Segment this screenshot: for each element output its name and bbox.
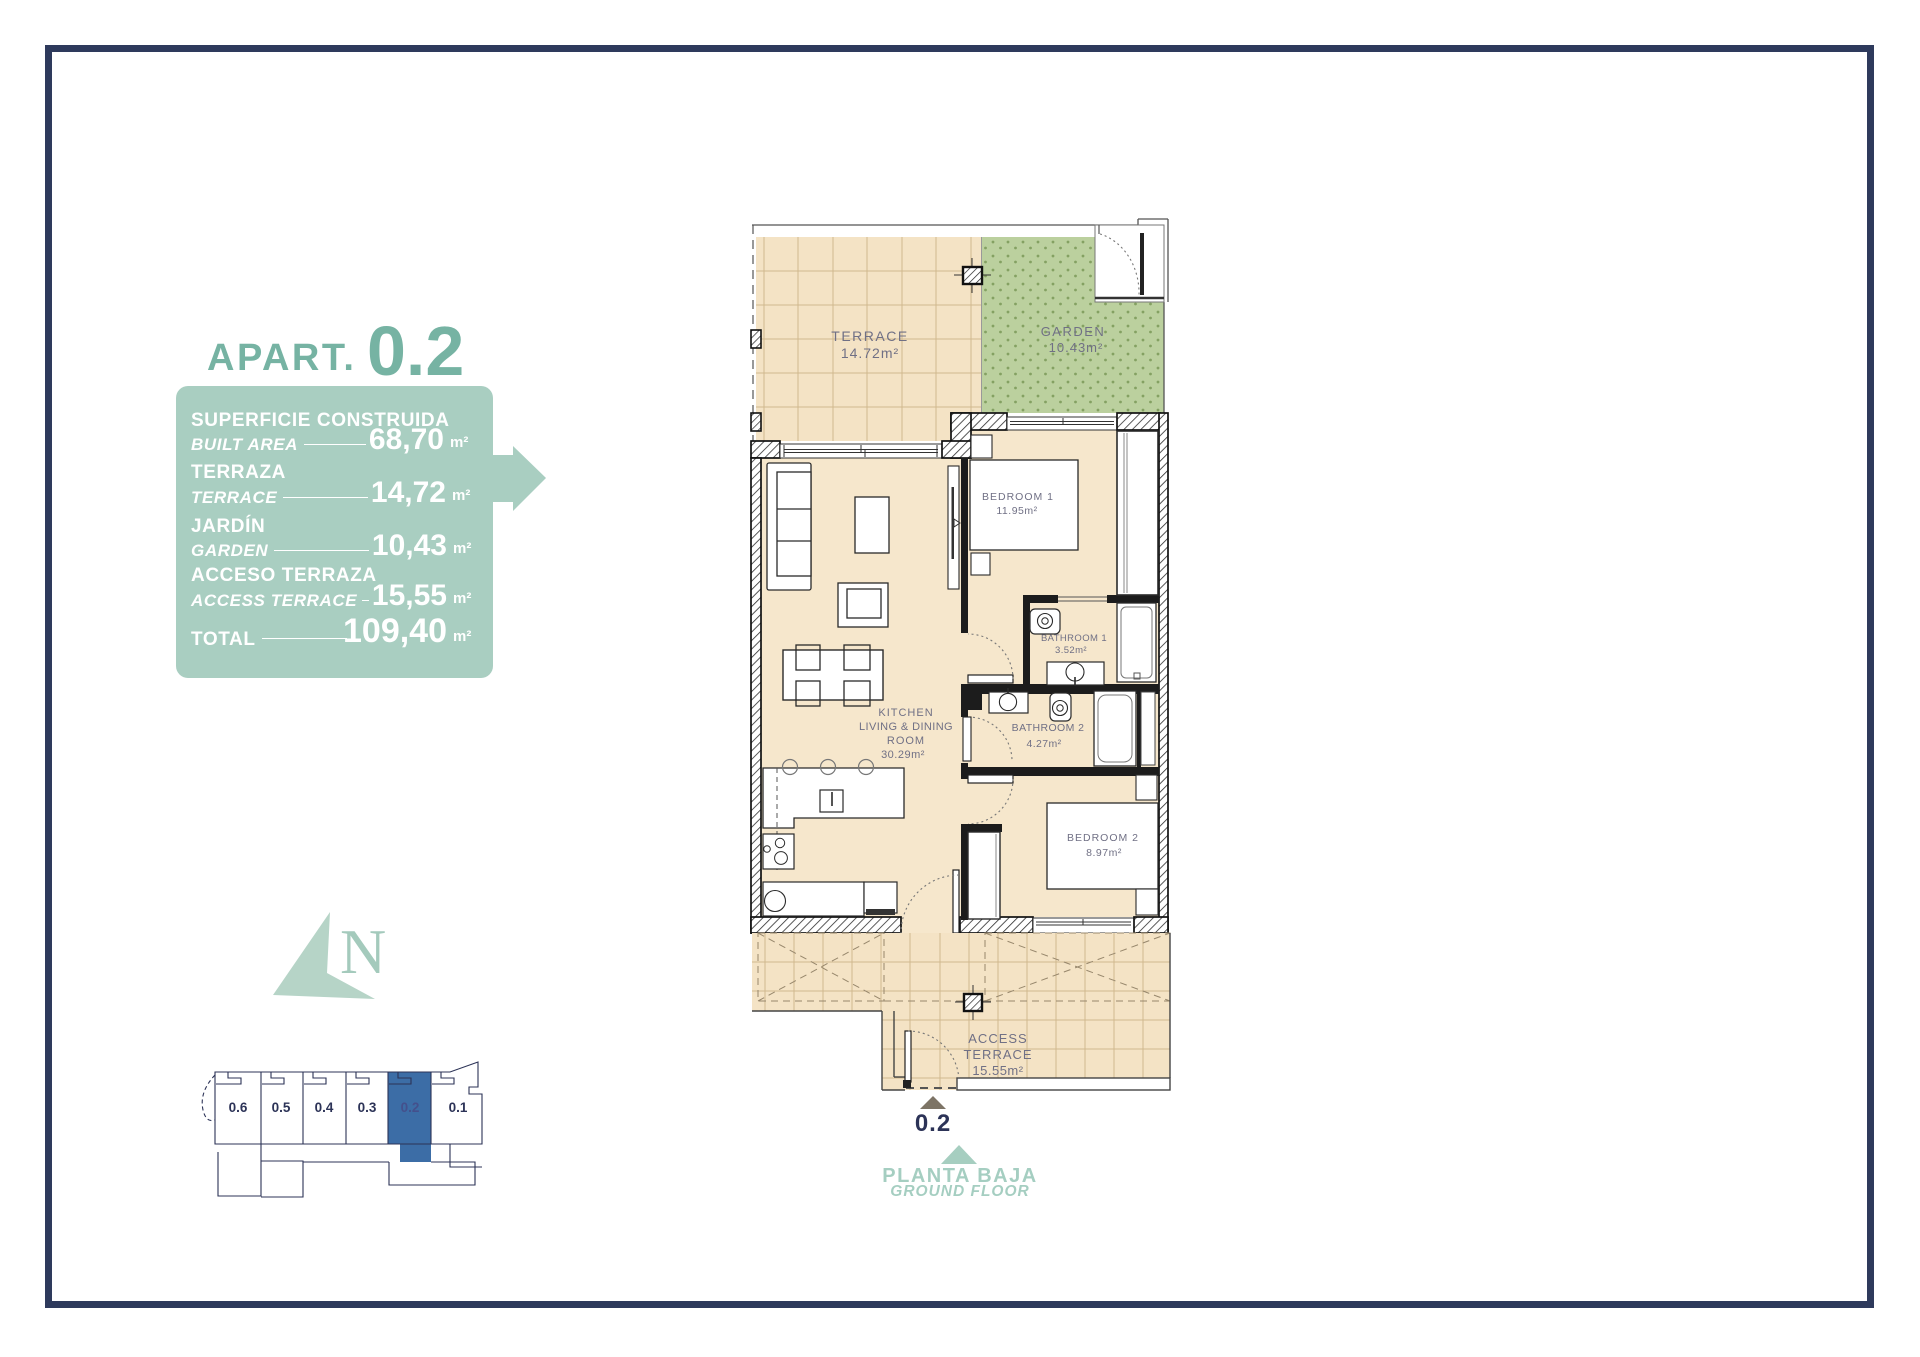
svg-text:LIVING & DINING: LIVING & DINING: [859, 721, 953, 733]
svg-text:BATHROOM 1: BATHROOM 1: [1041, 633, 1107, 644]
svg-text:14.72m²: 14.72m²: [841, 345, 899, 361]
svg-text:0.4: 0.4: [315, 1100, 334, 1115]
svg-text:BEDROOM 2: BEDROOM 2: [1067, 832, 1139, 844]
svg-text:0.3: 0.3: [358, 1100, 377, 1115]
svg-text:0.5: 0.5: [272, 1100, 291, 1115]
svg-text:30.29m²: 30.29m²: [881, 749, 925, 761]
svg-text:11.95m²: 11.95m²: [996, 505, 1037, 517]
svg-text:KITCHEN: KITCHEN: [878, 707, 933, 719]
svg-text:8.97m²: 8.97m²: [1086, 847, 1122, 859]
svg-text:BEDROOM 1: BEDROOM 1: [982, 491, 1054, 503]
svg-text:BATHROOM 2: BATHROOM 2: [1012, 722, 1085, 734]
svg-text:15.55m²: 15.55m²: [972, 1063, 1023, 1078]
svg-text:0.2: 0.2: [401, 1100, 420, 1115]
svg-text:GARDEN: GARDEN: [1041, 324, 1106, 339]
svg-text:ROOM: ROOM: [887, 735, 925, 747]
svg-text:0.1: 0.1: [449, 1100, 468, 1115]
svg-text:TERRACE: TERRACE: [831, 328, 908, 344]
svg-text:10.43m²: 10.43m²: [1049, 340, 1104, 355]
svg-text:4.27m²: 4.27m²: [1026, 738, 1061, 750]
svg-text:TERRACE: TERRACE: [963, 1047, 1032, 1062]
svg-text:3.52m²: 3.52m²: [1055, 645, 1087, 656]
svg-text:ACCESS: ACCESS: [968, 1031, 1027, 1046]
svg-text:0.6: 0.6: [229, 1100, 248, 1115]
